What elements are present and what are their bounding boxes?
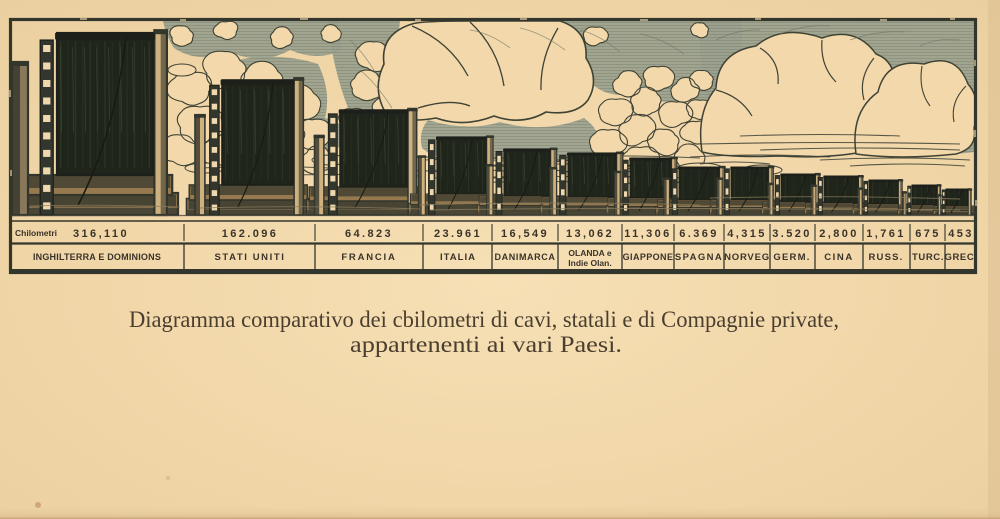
svg-text:ITALIA: ITALIA bbox=[440, 252, 476, 263]
svg-text:64.823: 64.823 bbox=[345, 228, 393, 240]
svg-text:INGHILTERRA E DOMINIONS: INGHILTERRA E DOMINIONS bbox=[33, 252, 161, 262]
svg-text:16,549: 16,549 bbox=[501, 228, 549, 240]
svg-text:SPAGNA: SPAGNA bbox=[675, 252, 723, 263]
svg-text:OLANDA e: OLANDA e bbox=[568, 248, 611, 258]
svg-text:316,110: 316,110 bbox=[73, 228, 129, 240]
svg-text:1,761: 1,761 bbox=[866, 228, 906, 240]
svg-text:453: 453 bbox=[948, 228, 974, 240]
svg-text:675: 675 bbox=[915, 228, 941, 240]
svg-text:STATI UNITI: STATI UNITI bbox=[214, 252, 285, 263]
svg-text:DANIMARCA: DANIMARCA bbox=[495, 252, 556, 262]
svg-text:NORVEG: NORVEG bbox=[724, 252, 770, 263]
svg-text:GIAPPONE: GIAPPONE bbox=[623, 252, 674, 262]
svg-text:162.096: 162.096 bbox=[222, 228, 279, 240]
svg-text:Indie Olan.: Indie Olan. bbox=[568, 258, 611, 268]
svg-text:CINA: CINA bbox=[824, 252, 854, 263]
svg-text:Chilometri: Chilometri bbox=[15, 228, 57, 238]
svg-text:FRANCIA: FRANCIA bbox=[341, 252, 396, 263]
svg-text:appartenenti ai vari Paesi.: appartenenti ai vari Paesi. bbox=[350, 332, 622, 357]
svg-text:4,315: 4,315 bbox=[727, 228, 767, 240]
svg-text:13,062: 13,062 bbox=[566, 228, 614, 240]
svg-text:3.520: 3.520 bbox=[772, 228, 812, 240]
svg-text:GREC.: GREC. bbox=[944, 252, 977, 263]
svg-text:RUSS.: RUSS. bbox=[868, 252, 903, 263]
svg-text:Diagramma comparativo dei cbil: Diagramma comparativo dei cbilometri di … bbox=[129, 307, 839, 332]
svg-text:2,800: 2,800 bbox=[819, 228, 859, 240]
svg-text:6.369: 6.369 bbox=[679, 228, 719, 240]
svg-text:23.961: 23.961 bbox=[434, 228, 482, 240]
svg-text:GERM.: GERM. bbox=[773, 252, 810, 263]
svg-text:TURC.: TURC. bbox=[912, 252, 944, 263]
svg-text:11,306: 11,306 bbox=[624, 228, 671, 240]
